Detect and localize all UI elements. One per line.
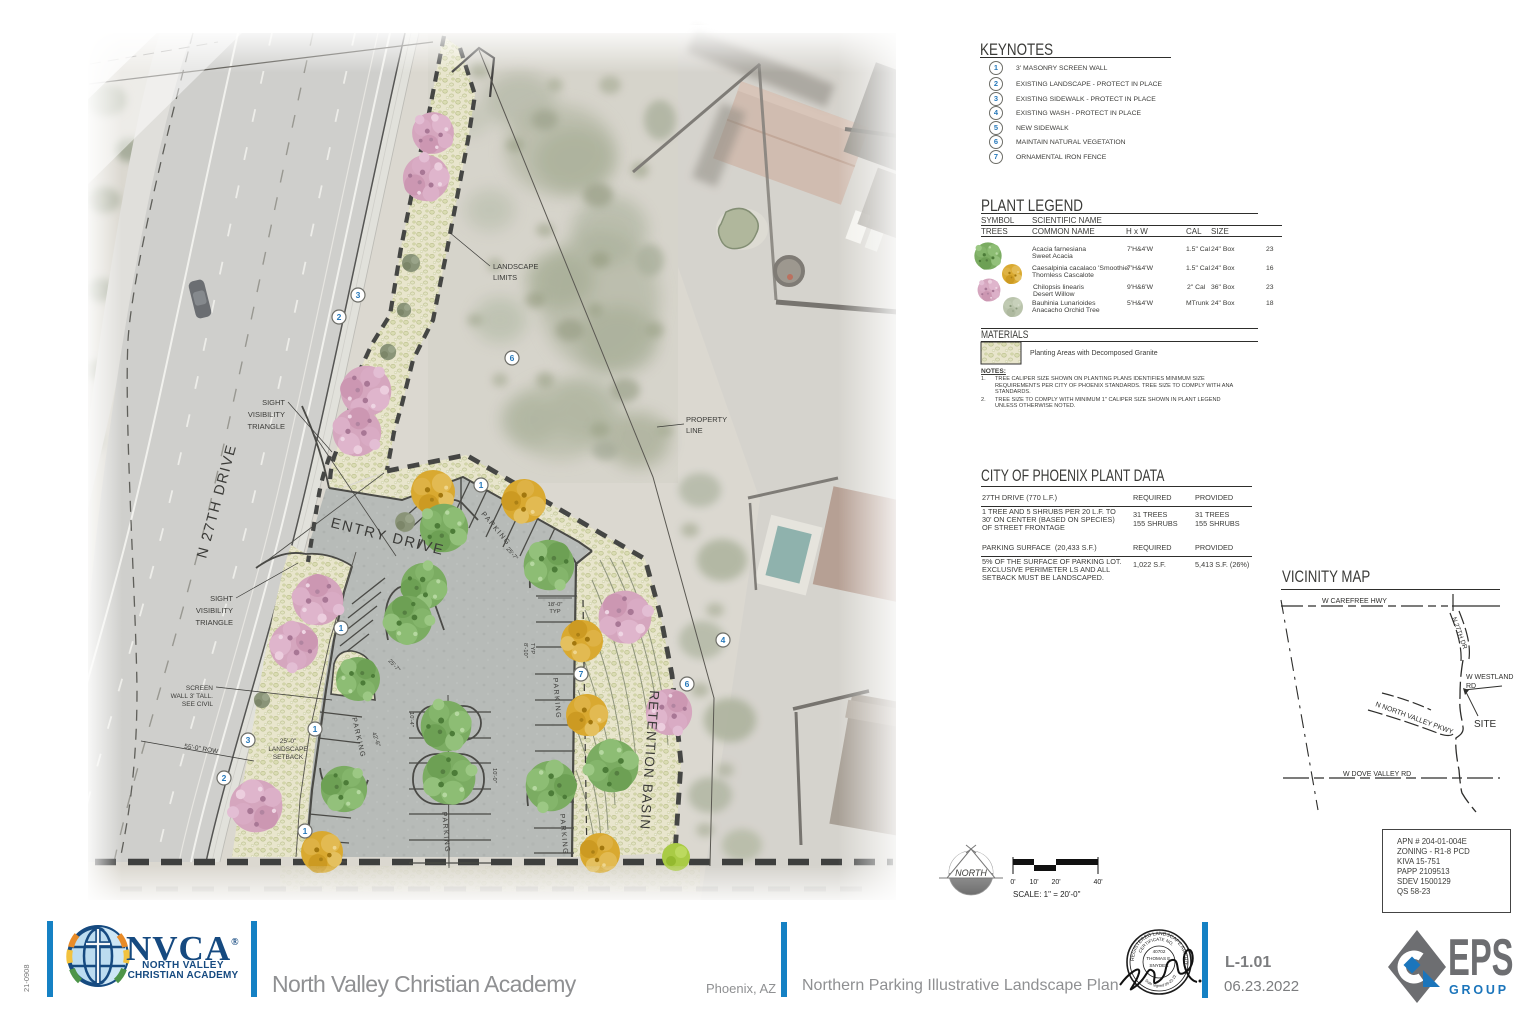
svg-text:SIGHT: SIGHT: [262, 398, 285, 407]
svg-text:7: 7: [579, 669, 584, 679]
svg-text:PROPERTY: PROPERTY: [686, 415, 727, 424]
svg-text:W WESTLAND: W WESTLAND: [1466, 674, 1513, 681]
svg-text:THOMAS E.: THOMAS E.: [1146, 956, 1171, 961]
svg-text:SCALE: 1" = 20'-0": SCALE: 1" = 20'-0": [1013, 890, 1081, 899]
svg-text:10'-4": 10'-4": [408, 712, 414, 727]
svg-text:25'-0": 25'-0": [280, 738, 297, 745]
svg-text:40702: 40702: [1153, 949, 1166, 954]
svg-text:2: 2: [337, 312, 342, 322]
svg-text:NORTH: NORTH: [955, 868, 987, 878]
svg-text:20': 20': [1051, 879, 1060, 886]
svg-text:Date Signed 09-22-22: Date Signed 09-22-22: [1144, 974, 1177, 988]
svg-text:TRIANGLE: TRIANGLE: [247, 422, 285, 431]
svg-text:10': 10': [1029, 879, 1038, 886]
svg-text:SIGHT: SIGHT: [210, 594, 233, 603]
svg-text:1: 1: [303, 826, 308, 836]
svg-text:N NORTH VALLEY PKWY: N NORTH VALLEY PKWY: [1374, 701, 1454, 736]
svg-text:LANDSCAPE: LANDSCAPE: [268, 746, 308, 753]
svg-text:W DOVE VALLEY RD: W DOVE VALLEY RD: [1343, 771, 1411, 778]
svg-text:3: 3: [356, 290, 361, 300]
svg-text:0': 0': [1010, 879, 1015, 886]
svg-text:SITE: SITE: [1474, 719, 1497, 730]
svg-text:SEE CIVIL: SEE CIVIL: [182, 701, 213, 708]
svg-text:W CAREFREE HWY: W CAREFREE HWY: [1322, 598, 1387, 605]
svg-text:4: 4: [721, 635, 726, 645]
svg-text:SETBACK: SETBACK: [273, 754, 304, 761]
svg-text:1: 1: [479, 480, 484, 490]
svg-text:10'-0": 10'-0": [491, 768, 497, 783]
svg-text:18'-0": 18'-0": [548, 602, 563, 608]
svg-text:6: 6: [685, 679, 690, 689]
svg-text:SCREEN: SCREEN: [186, 685, 213, 692]
svg-text:TYP: TYP: [549, 609, 560, 615]
svg-text:LINE: LINE: [686, 426, 703, 435]
svg-text:WALL 3' TALL.: WALL 3' TALL.: [171, 693, 214, 700]
svg-text:LIMITS: LIMITS: [493, 273, 517, 282]
svg-text:RD: RD: [1466, 683, 1476, 690]
svg-text:GROUP: GROUP: [1449, 983, 1509, 997]
svg-text:8'-10": 8'-10": [522, 643, 528, 658]
svg-text:1: 1: [313, 724, 318, 734]
svg-text:3: 3: [246, 735, 251, 745]
svg-text:LANDSCAPE: LANDSCAPE: [493, 262, 538, 271]
svg-text:N 27TH DR: N 27TH DR: [1450, 616, 1468, 650]
svg-text:VISIBILITY: VISIBILITY: [248, 410, 285, 419]
svg-text:2: 2: [222, 773, 227, 783]
svg-text:6: 6: [510, 353, 515, 363]
svg-text:40': 40': [1093, 879, 1102, 886]
svg-text:1: 1: [339, 623, 344, 633]
svg-text:TRIANGLE: TRIANGLE: [195, 618, 233, 627]
svg-text:VISIBILITY: VISIBILITY: [196, 606, 233, 615]
svg-text:EPS: EPS: [1448, 930, 1514, 987]
svg-text:TYP: TYP: [529, 643, 535, 654]
